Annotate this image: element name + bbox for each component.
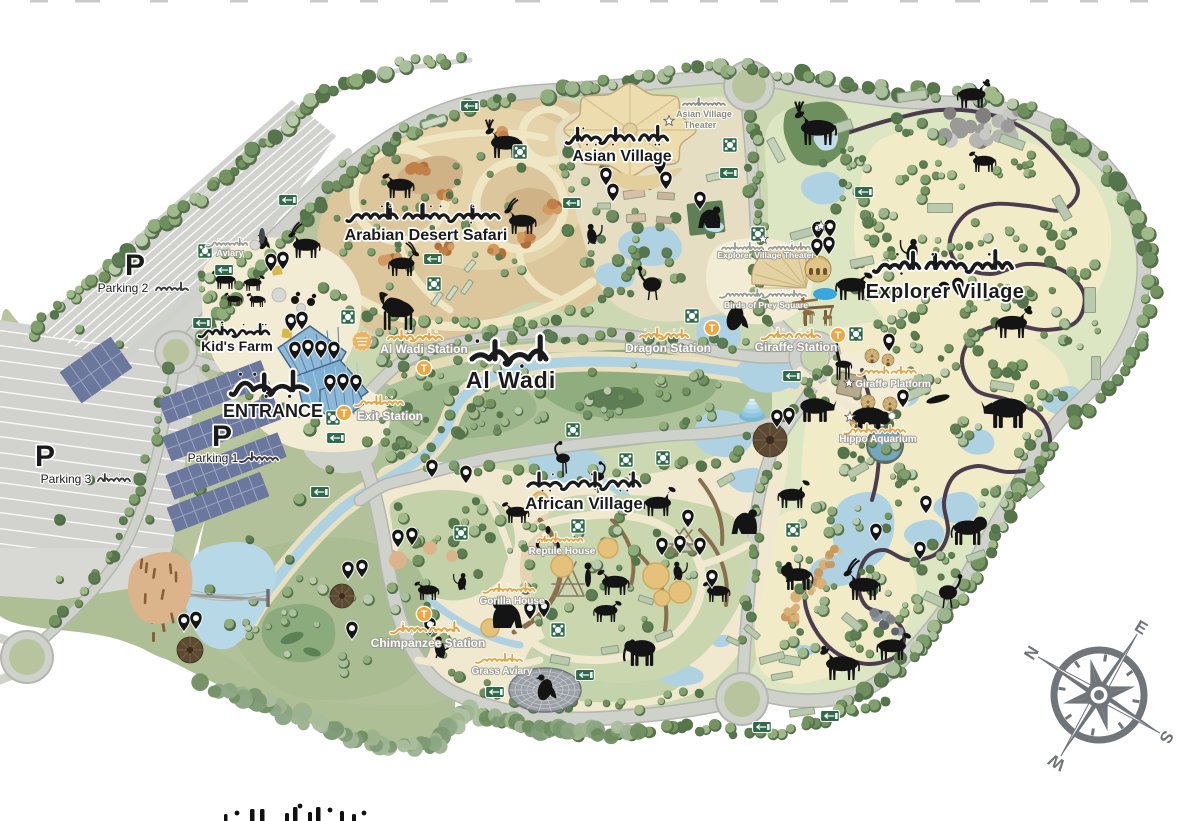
svg-text:Birds of Prey Square: Birds of Prey Square <box>724 300 808 310</box>
svg-text:P: P <box>125 249 145 282</box>
svg-text:ENTRANCE: ENTRANCE <box>223 401 323 421</box>
svg-text:Al Wadi: Al Wadi <box>466 367 556 393</box>
svg-text:T: T <box>835 330 842 342</box>
svg-text:Theater: Theater <box>684 120 717 130</box>
svg-text:Hippo Aquarium: Hippo Aquarium <box>839 434 917 445</box>
svg-text:Kid's Farm: Kid's Farm <box>201 338 273 354</box>
svg-text:Aviary: Aviary <box>216 248 243 258</box>
svg-text:T: T <box>421 363 428 375</box>
svg-text:T: T <box>341 408 348 420</box>
svg-text:African Village: African Village <box>525 494 643 513</box>
svg-text:Arabian Desert Safari: Arabian Desert Safari <box>345 227 508 244</box>
svg-text:Explorer Village: Explorer Village <box>866 281 1025 303</box>
svg-text:Explorer Village Theater: Explorer Village Theater <box>717 250 815 260</box>
svg-text:P: P <box>35 440 55 473</box>
svg-text:Exit Station: Exit Station <box>357 409 423 423</box>
svg-text:Giraffe Station: Giraffe Station <box>755 340 838 354</box>
svg-text:Chimpanzee Station: Chimpanzee Station <box>371 636 486 650</box>
svg-text:Parking 1: Parking 1 <box>188 451 239 465</box>
svg-text:Asian Village: Asian Village <box>572 148 671 165</box>
svg-text:Grass Aviary: Grass Aviary <box>472 666 533 677</box>
svg-text:Al Wadi Station: Al Wadi Station <box>380 342 468 356</box>
svg-text:Asian Village: Asian Village <box>676 109 732 119</box>
svg-text:T: T <box>709 323 716 335</box>
svg-text:Dragon Station: Dragon Station <box>625 341 711 355</box>
svg-text:Gorilla House: Gorilla House <box>479 596 544 607</box>
svg-text:T: T <box>421 609 428 621</box>
svg-text:Reptile House: Reptile House <box>529 546 596 557</box>
svg-text:Parking 2: Parking 2 <box>98 281 149 295</box>
svg-text:Parking 3: Parking 3 <box>41 472 92 486</box>
svg-text:Giraffe Platform: Giraffe Platform <box>855 379 931 390</box>
svg-text:P: P <box>212 420 232 453</box>
